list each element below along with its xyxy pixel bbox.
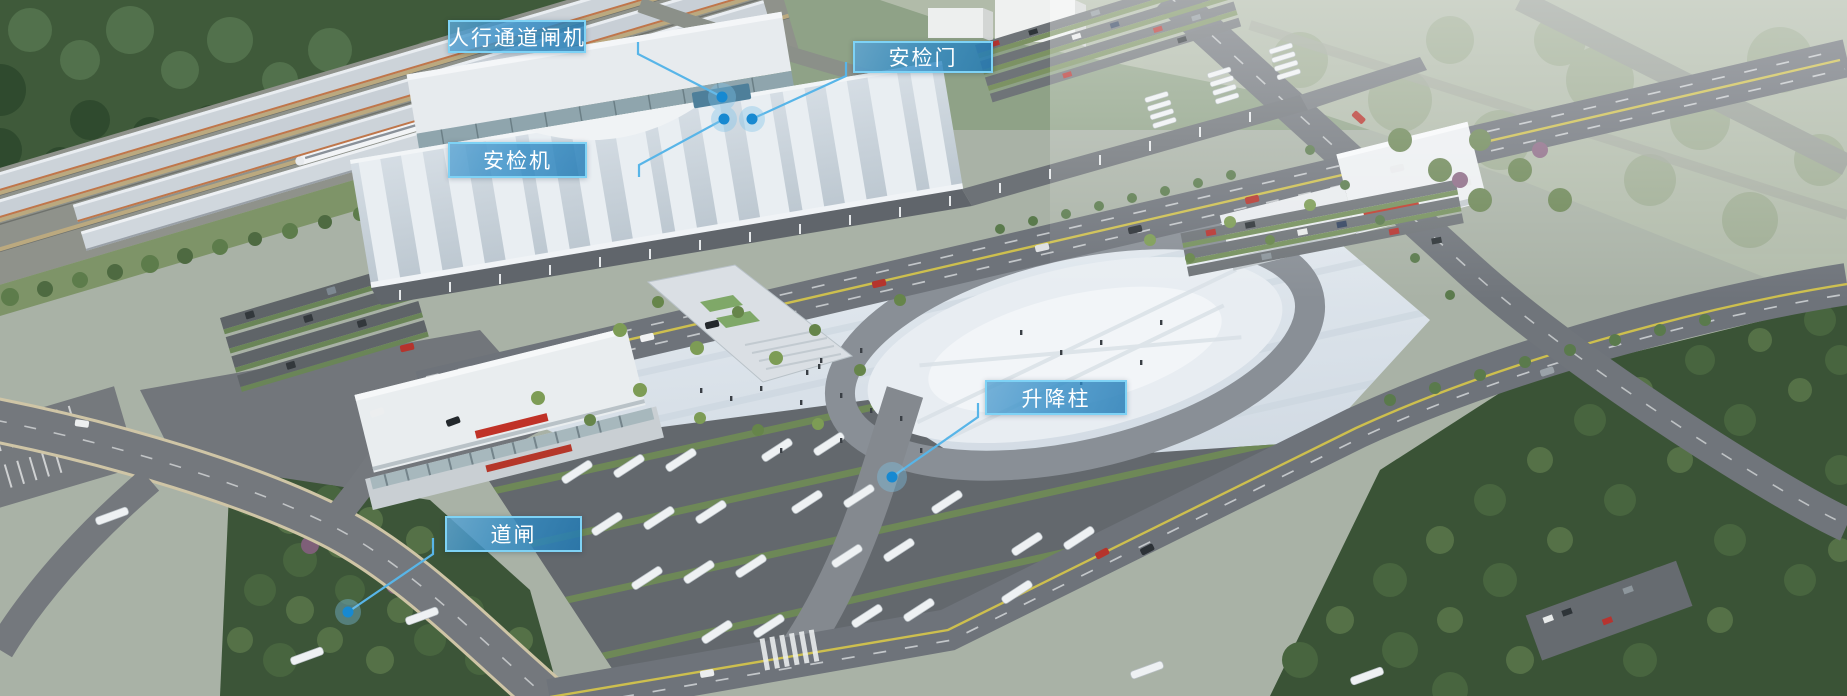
hotspot-dots <box>343 92 898 618</box>
marker-dot-road-barrier[interactable] <box>343 607 354 618</box>
callout-overlay <box>0 0 1847 696</box>
callout-pedestrian-turnstile[interactable]: 人行通道闸机 <box>448 20 586 53</box>
leader-lines <box>348 42 978 612</box>
leader-line-pedestrian-turnstile <box>638 42 722 97</box>
marker-dot-pedestrian-turnstile[interactable] <box>717 92 728 103</box>
station-hero-image: 人行通道闸机 安检门 安检机 升降柱 道闸 <box>0 0 1847 696</box>
callout-security-door[interactable]: 安检门 <box>853 41 993 73</box>
leader-line-security-door <box>752 62 846 119</box>
leader-line-road-barrier <box>348 538 433 612</box>
leader-line-lifting-bollard <box>892 403 978 477</box>
callout-security-scanner[interactable]: 安检机 <box>448 142 587 178</box>
callout-road-barrier[interactable]: 道闸 <box>445 516 582 552</box>
marker-dot-security-scanner[interactable] <box>719 114 730 125</box>
leader-line-security-scanner <box>639 119 724 177</box>
callout-label: 道闸 <box>491 519 537 549</box>
callout-label: 安检机 <box>483 145 552 175</box>
callout-label: 人行通道闸机 <box>448 22 586 52</box>
callout-label: 安检门 <box>889 42 958 72</box>
callout-label: 升降柱 <box>1022 383 1091 413</box>
marker-dot-security-door[interactable] <box>747 114 758 125</box>
hotspot-halos <box>335 83 907 625</box>
marker-dot-lifting-bollard[interactable] <box>887 472 898 483</box>
callout-lifting-bollard[interactable]: 升降柱 <box>985 380 1127 415</box>
